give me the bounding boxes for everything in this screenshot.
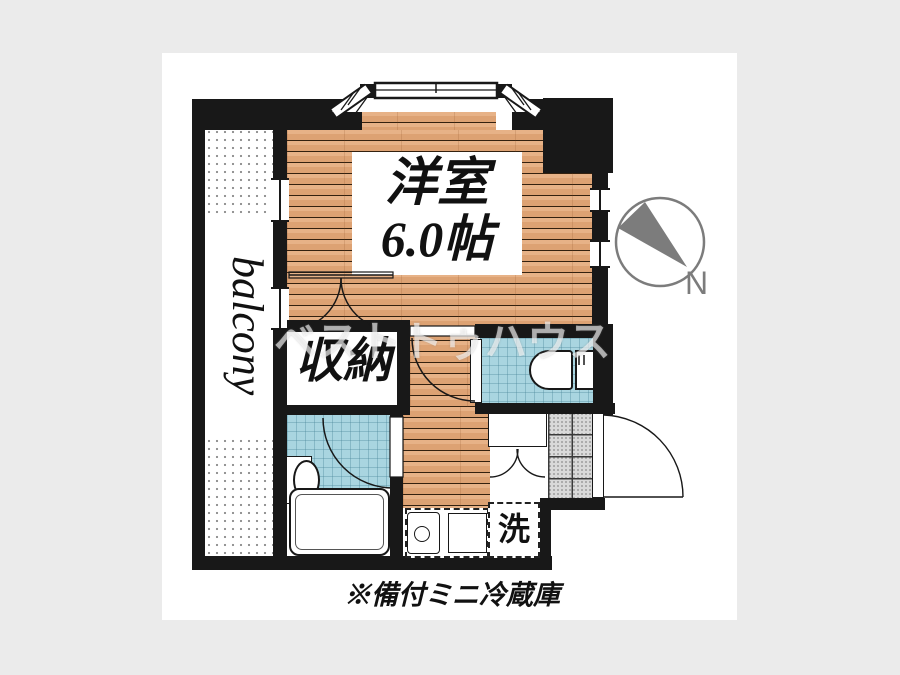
bathroom-right-wall-lower <box>390 477 403 558</box>
cabinet-door-arc-left <box>490 449 518 477</box>
watermark: ベストトゥハウス <box>274 308 624 369</box>
bay-window-glass <box>375 83 497 98</box>
bathroom-doorway <box>390 417 403 477</box>
west-wall-segment <box>273 99 287 178</box>
compass-north-label: N <box>685 265 708 302</box>
balcony-label: balcony <box>205 215 273 437</box>
top-exterior-wall-right <box>512 99 545 130</box>
bottom-exterior-wall <box>192 556 552 570</box>
east-wall-segment <box>592 212 608 240</box>
entrance-door-arc <box>604 415 683 497</box>
equipment-note: ※備付ミニ冷蔵庫 <box>302 573 602 612</box>
balcony-floor-lower <box>205 437 273 556</box>
sink-drain <box>414 526 430 542</box>
entrance-tile-floor <box>548 412 595 500</box>
kitchen-floor <box>403 407 490 508</box>
entrance-door-leaf <box>592 413 604 498</box>
cabinet-door-arc-right <box>517 449 545 477</box>
floor-plan-canvas: balcony 洋室 6.0帖 収納 <box>162 53 737 620</box>
washer-right-wall <box>540 506 551 570</box>
bathroom-right-wall-upper <box>390 405 403 417</box>
bay-window-mullion-left <box>360 84 375 98</box>
balcony-outer-wall-left <box>192 99 205 569</box>
east-wall-segment <box>592 173 608 188</box>
washer-label: 洗 <box>488 513 540 547</box>
floor-plan-page: balcony 洋室 6.0帖 収納 <box>0 0 900 675</box>
west-wall-segment <box>273 222 287 287</box>
main-room-size: 6.0帖 <box>352 213 522 266</box>
east-window-lower-glass-line <box>599 240 601 268</box>
compass-needle-icon <box>618 202 687 267</box>
main-room-name: 洋室 <box>352 157 522 212</box>
corner-column-northeast <box>543 98 613 173</box>
east-window-upper-glass-line <box>599 188 601 212</box>
bay-window-floor-strip <box>340 112 496 130</box>
bay-window-body <box>332 84 540 112</box>
west-window-upper-glass-line <box>279 178 281 222</box>
bay-window-mullion-right <box>497 84 512 98</box>
bathtub-inner-rim <box>295 494 384 550</box>
mini-fridge <box>488 413 547 447</box>
stove-space <box>448 513 487 553</box>
